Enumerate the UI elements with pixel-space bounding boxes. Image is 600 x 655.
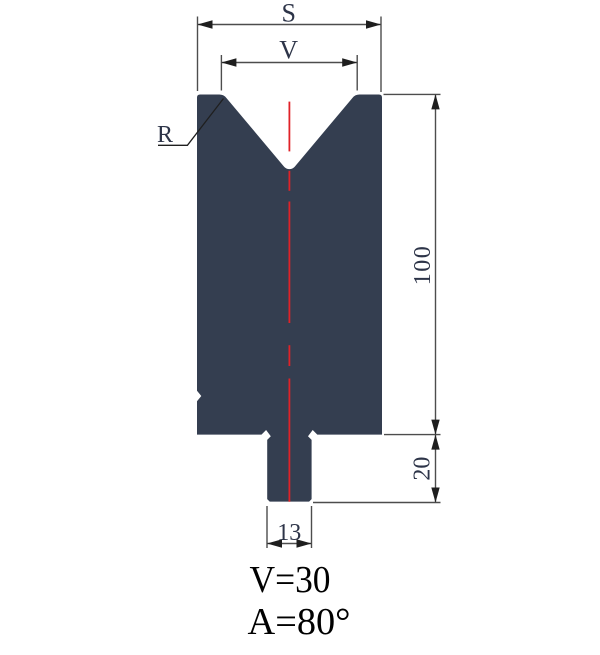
svg-text:20: 20 <box>410 457 436 481</box>
svg-text:V: V <box>279 36 298 65</box>
svg-text:R: R <box>157 122 173 148</box>
svg-text:13: 13 <box>277 520 301 546</box>
svg-text:100: 100 <box>410 245 436 286</box>
svg-text:S: S <box>281 0 295 28</box>
svg-text:A=80°: A=80° <box>248 601 351 643</box>
svg-text:V=30: V=30 <box>250 559 331 601</box>
